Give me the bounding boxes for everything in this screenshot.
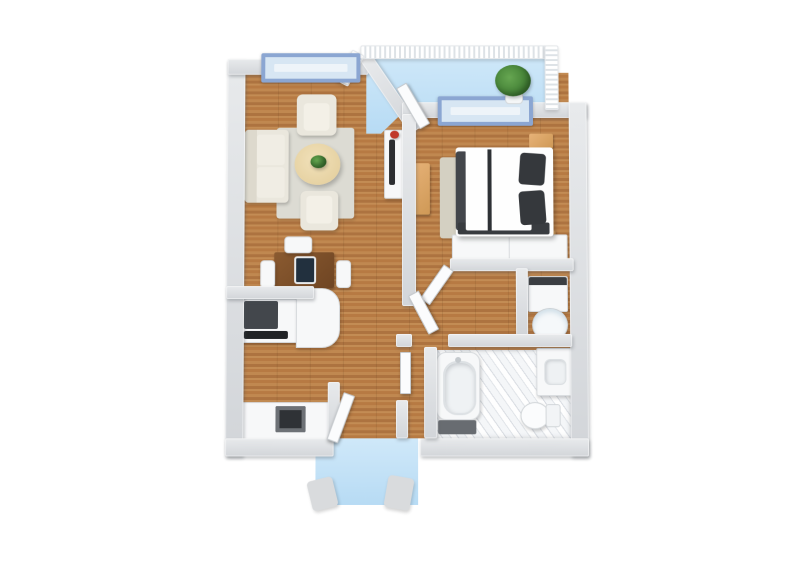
nightstand-top — [529, 134, 553, 149]
bathroom-door — [400, 352, 411, 394]
balcony-plant-icon — [495, 65, 531, 96]
bathroom-north-wall — [448, 334, 572, 347]
armchair-top — [297, 94, 337, 135]
right-outer-wall — [569, 102, 589, 456]
floor-plan-canvas — [0, 0, 800, 565]
bedroom-south-wall — [450, 258, 574, 271]
vanity-basin — [544, 359, 566, 385]
sofa-backrest — [245, 130, 257, 203]
armchair-bottom — [300, 191, 338, 231]
apartment-floor-plan — [0, 4, 800, 565]
sofa-cushion — [257, 135, 285, 166]
bath-mat — [438, 420, 476, 434]
double-bed — [456, 147, 554, 236]
kitchen-range — [244, 301, 278, 329]
living-room-window — [261, 53, 360, 82]
washer-top-panel — [529, 277, 567, 285]
laundry-west-wall — [516, 268, 528, 336]
balcony-railing-top — [360, 45, 556, 59]
bed-pillow — [518, 152, 546, 185]
bathtub-basin — [443, 361, 476, 415]
red-vase — [390, 131, 399, 139]
bathroom-north-wall-stub — [396, 334, 412, 347]
tv-screen — [389, 140, 395, 185]
desk-chair-top — [284, 236, 312, 253]
living-bedroom-wall — [402, 114, 416, 306]
kitchen-wall — [226, 286, 314, 299]
kitchen-sink — [275, 406, 305, 432]
bathroom-west-wall — [424, 347, 437, 438]
desk-chair-left — [260, 260, 275, 288]
bathtub-faucet-icon — [455, 357, 461, 363]
bottom-wall-left — [225, 438, 334, 456]
sofa — [245, 130, 289, 203]
desk-chair-right — [336, 260, 351, 288]
bathtub — [436, 352, 480, 420]
toilet-tank — [546, 404, 561, 427]
porch-planter-right — [383, 475, 414, 511]
washer — [528, 276, 568, 312]
kitchen-cooktop-strip — [244, 331, 288, 339]
balcony-railing-right — [544, 45, 558, 110]
bed-pillow — [518, 190, 546, 225]
table-plant-icon — [310, 155, 326, 168]
entry-stub-wall-right — [396, 400, 408, 438]
vanity-sink — [536, 348, 572, 396]
bottom-wall-right — [420, 438, 589, 456]
sofa-cushion — [257, 167, 285, 198]
computer-monitor — [294, 256, 316, 284]
bed-duvet-fold — [487, 149, 491, 230]
left-outer-wall — [225, 59, 246, 456]
wardrobe-door-line — [509, 237, 510, 259]
armchair-cushion — [306, 196, 332, 224]
armchair-cushion — [304, 103, 330, 131]
